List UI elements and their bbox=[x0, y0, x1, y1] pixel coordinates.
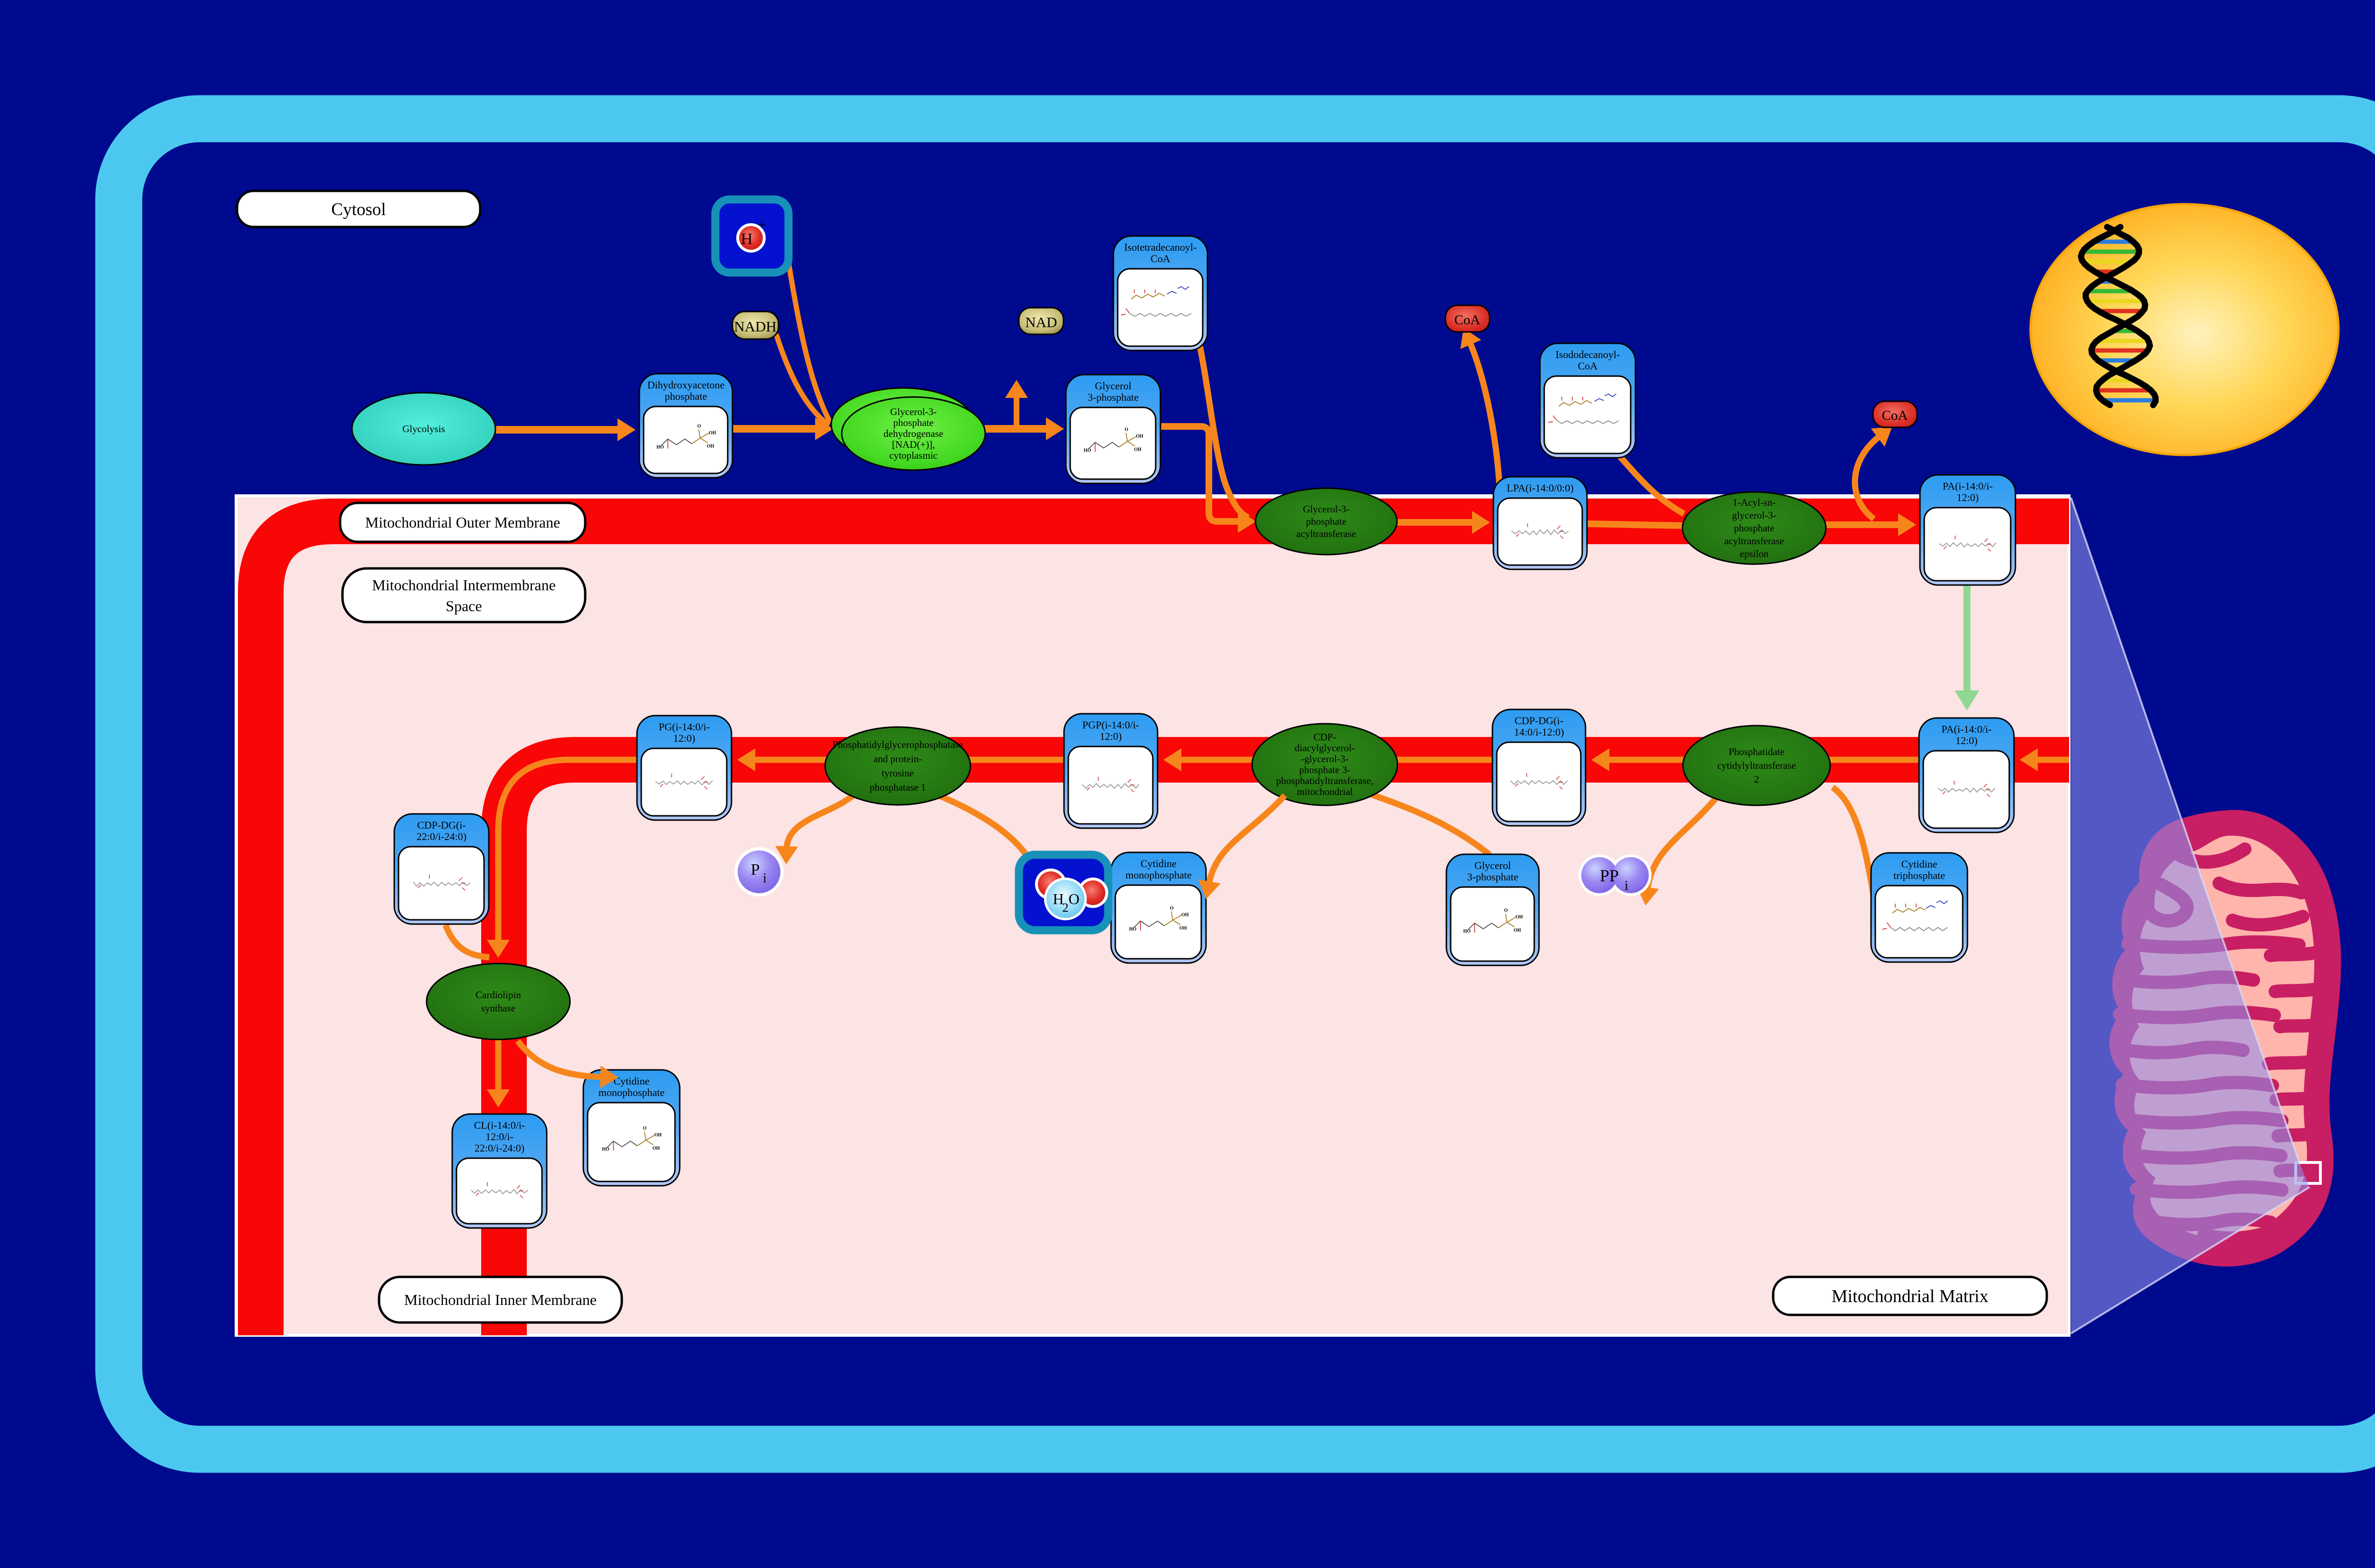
svg-text:HO: HO bbox=[1129, 927, 1137, 932]
svg-text:phosphate: phosphate bbox=[893, 417, 933, 428]
svg-text:phosphate 3-: phosphate 3- bbox=[1299, 764, 1350, 775]
svg-text:12:0): 12:0) bbox=[1100, 730, 1121, 742]
svg-text:HO: HO bbox=[1463, 929, 1471, 934]
svg-text:PA(i-14:0/i-: PA(i-14:0/i- bbox=[1943, 480, 1993, 492]
svg-text:NAD: NAD bbox=[1025, 314, 1057, 331]
svg-text:+: + bbox=[758, 216, 766, 233]
svg-text:acyltransferase: acyltransferase bbox=[1724, 535, 1784, 547]
svg-text:PP: PP bbox=[1600, 866, 1619, 885]
svg-text:OH: OH bbox=[1516, 915, 1523, 920]
svg-text:-glycerol-3-: -glycerol-3- bbox=[1301, 753, 1349, 765]
svg-text:O: O bbox=[1068, 890, 1079, 907]
svg-text:phosphate: phosphate bbox=[665, 390, 707, 402]
svg-text:Mitochondrial Intermembrane: Mitochondrial Intermembrane bbox=[372, 576, 556, 594]
svg-text:2: 2 bbox=[1754, 774, 1759, 785]
svg-text:CDP-DG(i-: CDP-DG(i- bbox=[417, 819, 466, 831]
svg-text:and protein-: and protein- bbox=[874, 753, 922, 765]
svg-text:monophosphate: monophosphate bbox=[1125, 869, 1191, 881]
svg-text:OH: OH bbox=[709, 431, 716, 436]
svg-text:Isododecanoyl-: Isododecanoyl- bbox=[1556, 349, 1620, 360]
svg-text:i: i bbox=[763, 871, 767, 886]
svg-text:OH: OH bbox=[1136, 434, 1144, 439]
svg-text:monophosphate: monophosphate bbox=[598, 1086, 665, 1098]
svg-text:CDP-: CDP- bbox=[1313, 731, 1336, 743]
svg-text:O: O bbox=[1125, 427, 1129, 433]
svg-text:acyltransferase: acyltransferase bbox=[1296, 528, 1356, 539]
svg-text:P: P bbox=[751, 861, 760, 878]
svg-text:Dihydroxyacetone: Dihydroxyacetone bbox=[647, 379, 725, 391]
svg-text:Isotetradecanoyl-: Isotetradecanoyl- bbox=[1124, 241, 1197, 253]
svg-text:glycerol-3-: glycerol-3- bbox=[1732, 510, 1776, 521]
svg-text:O: O bbox=[697, 424, 701, 429]
svg-text:PGP(i-14:0/i-: PGP(i-14:0/i- bbox=[1083, 719, 1140, 731]
svg-text:Cytidine: Cytidine bbox=[614, 1075, 650, 1087]
svg-text:O: O bbox=[1504, 908, 1508, 913]
svg-text:[NAD(+)],: [NAD(+)], bbox=[892, 439, 935, 450]
svg-text:cytidylyltransferase: cytidylyltransferase bbox=[1717, 760, 1796, 771]
svg-text:12:0/i-: 12:0/i- bbox=[485, 1131, 513, 1143]
svg-text:OH: OH bbox=[1514, 928, 1521, 933]
svg-text:i: i bbox=[1624, 878, 1628, 893]
svg-text:PA(i-14:0/i-: PA(i-14:0/i- bbox=[1941, 723, 1992, 735]
svg-text:H: H bbox=[741, 230, 753, 248]
svg-text:OH: OH bbox=[653, 1146, 660, 1151]
svg-text:12:0): 12:0) bbox=[1957, 491, 1978, 503]
svg-text:HO: HO bbox=[602, 1147, 610, 1152]
svg-text:epsilon: epsilon bbox=[1740, 548, 1769, 559]
svg-text:mitochondrial: mitochondrial bbox=[1297, 786, 1353, 797]
svg-text:Cytosol: Cytosol bbox=[331, 200, 386, 219]
svg-text:12:0): 12:0) bbox=[673, 732, 695, 744]
svg-text:phosphatase 1: phosphatase 1 bbox=[870, 782, 926, 793]
svg-text:Cytidine: Cytidine bbox=[1901, 858, 1938, 870]
svg-text:OH: OH bbox=[1179, 926, 1187, 931]
svg-text:Mitochondrial Inner Membrane: Mitochondrial Inner Membrane bbox=[404, 1291, 597, 1308]
svg-text:LPA(i-14:0/0:0): LPA(i-14:0/0:0) bbox=[1507, 482, 1574, 494]
svg-text:synthase: synthase bbox=[481, 1002, 515, 1014]
svg-text:phosphate: phosphate bbox=[1734, 522, 1774, 534]
svg-text:OH: OH bbox=[655, 1133, 662, 1138]
svg-text:Phosphatidylglycerophosphatase: Phosphatidylglycerophosphatase bbox=[832, 739, 963, 750]
svg-text:Mitochondrial Matrix: Mitochondrial Matrix bbox=[1832, 1286, 1988, 1306]
svg-text:CoA: CoA bbox=[1454, 312, 1481, 328]
svg-text:O: O bbox=[1170, 906, 1174, 911]
svg-text:triphosphate: triphosphate bbox=[1893, 869, 1945, 881]
svg-text:CL(i-14:0/i-: CL(i-14:0/i- bbox=[474, 1119, 525, 1131]
svg-text:dehydrogenase: dehydrogenase bbox=[883, 428, 943, 439]
svg-text:CDP-DG(i-: CDP-DG(i- bbox=[1515, 715, 1564, 727]
svg-text:12:0): 12:0) bbox=[1956, 735, 1977, 746]
svg-text:HO: HO bbox=[656, 445, 664, 450]
svg-text:HO: HO bbox=[1084, 448, 1092, 453]
svg-text:3-phosphate: 3-phosphate bbox=[1467, 871, 1519, 883]
svg-text:OH: OH bbox=[1181, 913, 1189, 918]
svg-text:14:0/i-12:0): 14:0/i-12:0) bbox=[1514, 726, 1564, 738]
svg-text:O: O bbox=[643, 1126, 647, 1131]
svg-text:3-phosphate: 3-phosphate bbox=[1088, 391, 1139, 403]
svg-text:22:0/i-24:0): 22:0/i-24:0) bbox=[475, 1142, 524, 1154]
svg-text:cytoplasmic: cytoplasmic bbox=[889, 450, 937, 461]
svg-text:Mitochondrial Outer Membrane: Mitochondrial Outer Membrane bbox=[365, 514, 560, 531]
svg-text:CoA: CoA bbox=[1150, 253, 1170, 264]
svg-text:Phosphatidate: Phosphatidate bbox=[1729, 746, 1785, 757]
svg-text:OH: OH bbox=[707, 444, 714, 449]
svg-text:CoA: CoA bbox=[1578, 360, 1598, 372]
svg-text:Glycerol: Glycerol bbox=[1095, 380, 1131, 392]
svg-text:2: 2 bbox=[1063, 901, 1069, 915]
svg-text:NADH: NADH bbox=[734, 318, 777, 335]
svg-text:Glycerol: Glycerol bbox=[1474, 860, 1511, 871]
svg-text:Cardiolipin: Cardiolipin bbox=[475, 989, 521, 1001]
svg-text:CoA: CoA bbox=[1882, 408, 1908, 423]
svg-text:OH: OH bbox=[1134, 447, 1142, 453]
svg-text:Cytidine: Cytidine bbox=[1140, 858, 1177, 869]
svg-text:diacylglycerol-: diacylglycerol- bbox=[1294, 742, 1355, 754]
svg-text:Glycerol-3-: Glycerol-3- bbox=[1303, 503, 1349, 515]
svg-text:22:0/i-24:0): 22:0/i-24:0) bbox=[417, 831, 466, 842]
svg-text:Glycolysis: Glycolysis bbox=[402, 423, 445, 435]
svg-text:1-Acyl-sn-: 1-Acyl-sn- bbox=[1733, 497, 1776, 508]
svg-text:phosphatidyltransferase,: phosphatidyltransferase, bbox=[1276, 775, 1374, 786]
svg-text:phosphate: phosphate bbox=[1306, 516, 1346, 527]
svg-text:PG(i-14:0/i-: PG(i-14:0/i- bbox=[659, 721, 710, 733]
svg-text:Space: Space bbox=[446, 597, 482, 614]
svg-text:Glycerol-3-: Glycerol-3- bbox=[890, 406, 937, 417]
svg-text:tyrosine: tyrosine bbox=[882, 767, 914, 779]
